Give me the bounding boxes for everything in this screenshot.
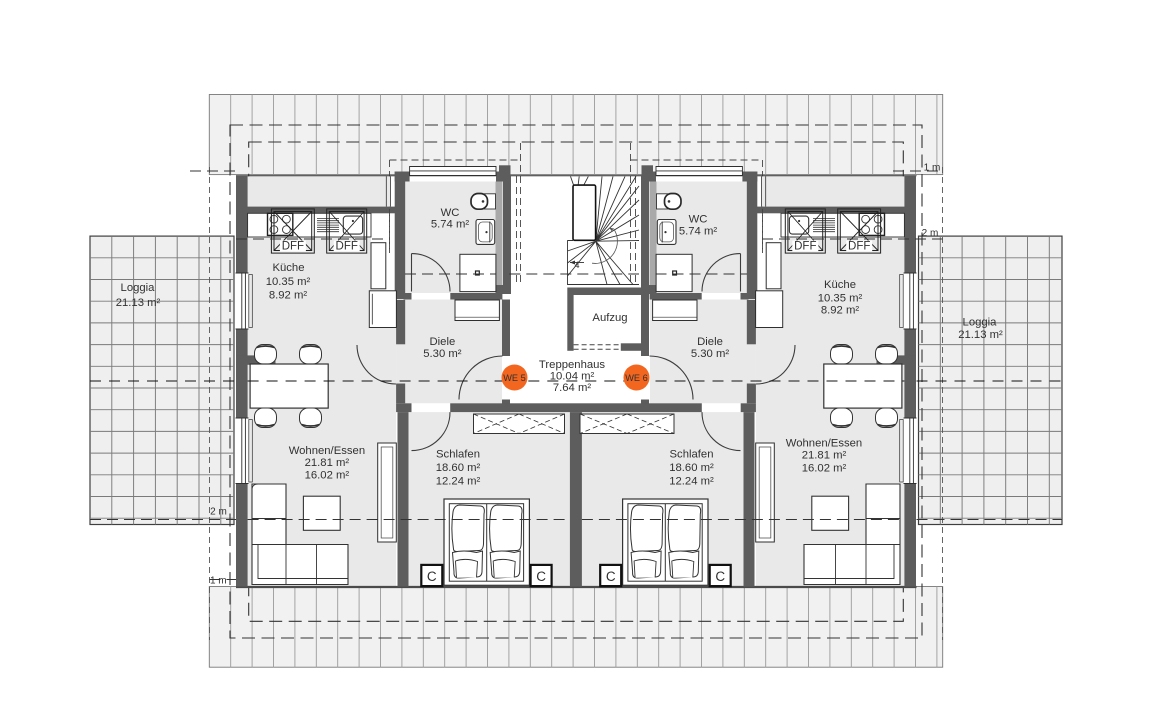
svg-text:21.13 m²: 21.13 m² bbox=[116, 297, 161, 309]
svg-text:Wohnen/Essen: Wohnen/Essen bbox=[786, 438, 862, 450]
svg-text:1 m: 1 m bbox=[210, 576, 227, 587]
svg-text:5.30 m²: 5.30 m² bbox=[691, 348, 730, 360]
svg-text:Schlafen: Schlafen bbox=[670, 449, 714, 461]
svg-text:WC: WC bbox=[441, 207, 460, 219]
svg-text:WE 6: WE 6 bbox=[625, 373, 647, 383]
svg-text:4: 4 bbox=[575, 260, 580, 270]
svg-text:10.04 m²: 10.04 m² bbox=[550, 371, 595, 383]
svg-text:Schlafen: Schlafen bbox=[436, 449, 480, 461]
svg-text:21.13 m²: 21.13 m² bbox=[958, 329, 1003, 341]
svg-text:5.74 m²: 5.74 m² bbox=[679, 225, 718, 237]
svg-text:DFF: DFF bbox=[336, 241, 358, 253]
svg-text:C: C bbox=[606, 569, 616, 584]
svg-text:8.92 m²: 8.92 m² bbox=[269, 289, 308, 301]
svg-text:WC: WC bbox=[689, 213, 708, 225]
svg-text:5.30 m²: 5.30 m² bbox=[423, 348, 462, 360]
svg-text:C: C bbox=[715, 569, 725, 584]
svg-text:7.64 m²: 7.64 m² bbox=[553, 382, 592, 394]
svg-text:16.02 m²: 16.02 m² bbox=[802, 462, 847, 474]
svg-text:DFF: DFF bbox=[794, 241, 816, 253]
svg-text:C: C bbox=[536, 569, 546, 584]
svg-text:12.24 m²: 12.24 m² bbox=[669, 475, 714, 487]
svg-text:WE 5: WE 5 bbox=[503, 373, 525, 383]
svg-text:Treppenhaus: Treppenhaus bbox=[539, 359, 606, 371]
svg-text:21.81 m²: 21.81 m² bbox=[305, 457, 350, 469]
svg-text:18.60 m²: 18.60 m² bbox=[436, 462, 481, 474]
svg-text:1 m: 1 m bbox=[924, 163, 941, 174]
svg-text:Küche: Küche bbox=[824, 279, 856, 291]
svg-text:Küche: Küche bbox=[272, 262, 304, 274]
svg-text:Aufzug: Aufzug bbox=[592, 312, 627, 324]
svg-text:12.24 m²: 12.24 m² bbox=[436, 475, 481, 487]
svg-text:Diele: Diele bbox=[430, 336, 456, 348]
svg-text:Loggia: Loggia bbox=[121, 282, 156, 294]
svg-text:5.74 m²: 5.74 m² bbox=[431, 219, 470, 231]
svg-text:Wohnen/Essen: Wohnen/Essen bbox=[289, 445, 365, 457]
svg-text:10.35 m²: 10.35 m² bbox=[818, 292, 863, 304]
svg-text:2 m: 2 m bbox=[210, 507, 227, 518]
svg-text:C: C bbox=[427, 569, 437, 584]
svg-text:8.92 m²: 8.92 m² bbox=[821, 304, 860, 316]
svg-text:21.81 m²: 21.81 m² bbox=[802, 449, 847, 461]
svg-text:16.02 m²: 16.02 m² bbox=[305, 470, 350, 482]
svg-text:2 m: 2 m bbox=[922, 228, 939, 239]
svg-text:DFF: DFF bbox=[282, 241, 304, 253]
svg-text:Loggia: Loggia bbox=[963, 316, 998, 328]
svg-text:DFF: DFF bbox=[848, 241, 870, 253]
svg-text:10.35 m²: 10.35 m² bbox=[266, 276, 311, 288]
svg-text:18.60 m²: 18.60 m² bbox=[669, 462, 714, 474]
svg-text:Diele: Diele bbox=[697, 336, 723, 348]
